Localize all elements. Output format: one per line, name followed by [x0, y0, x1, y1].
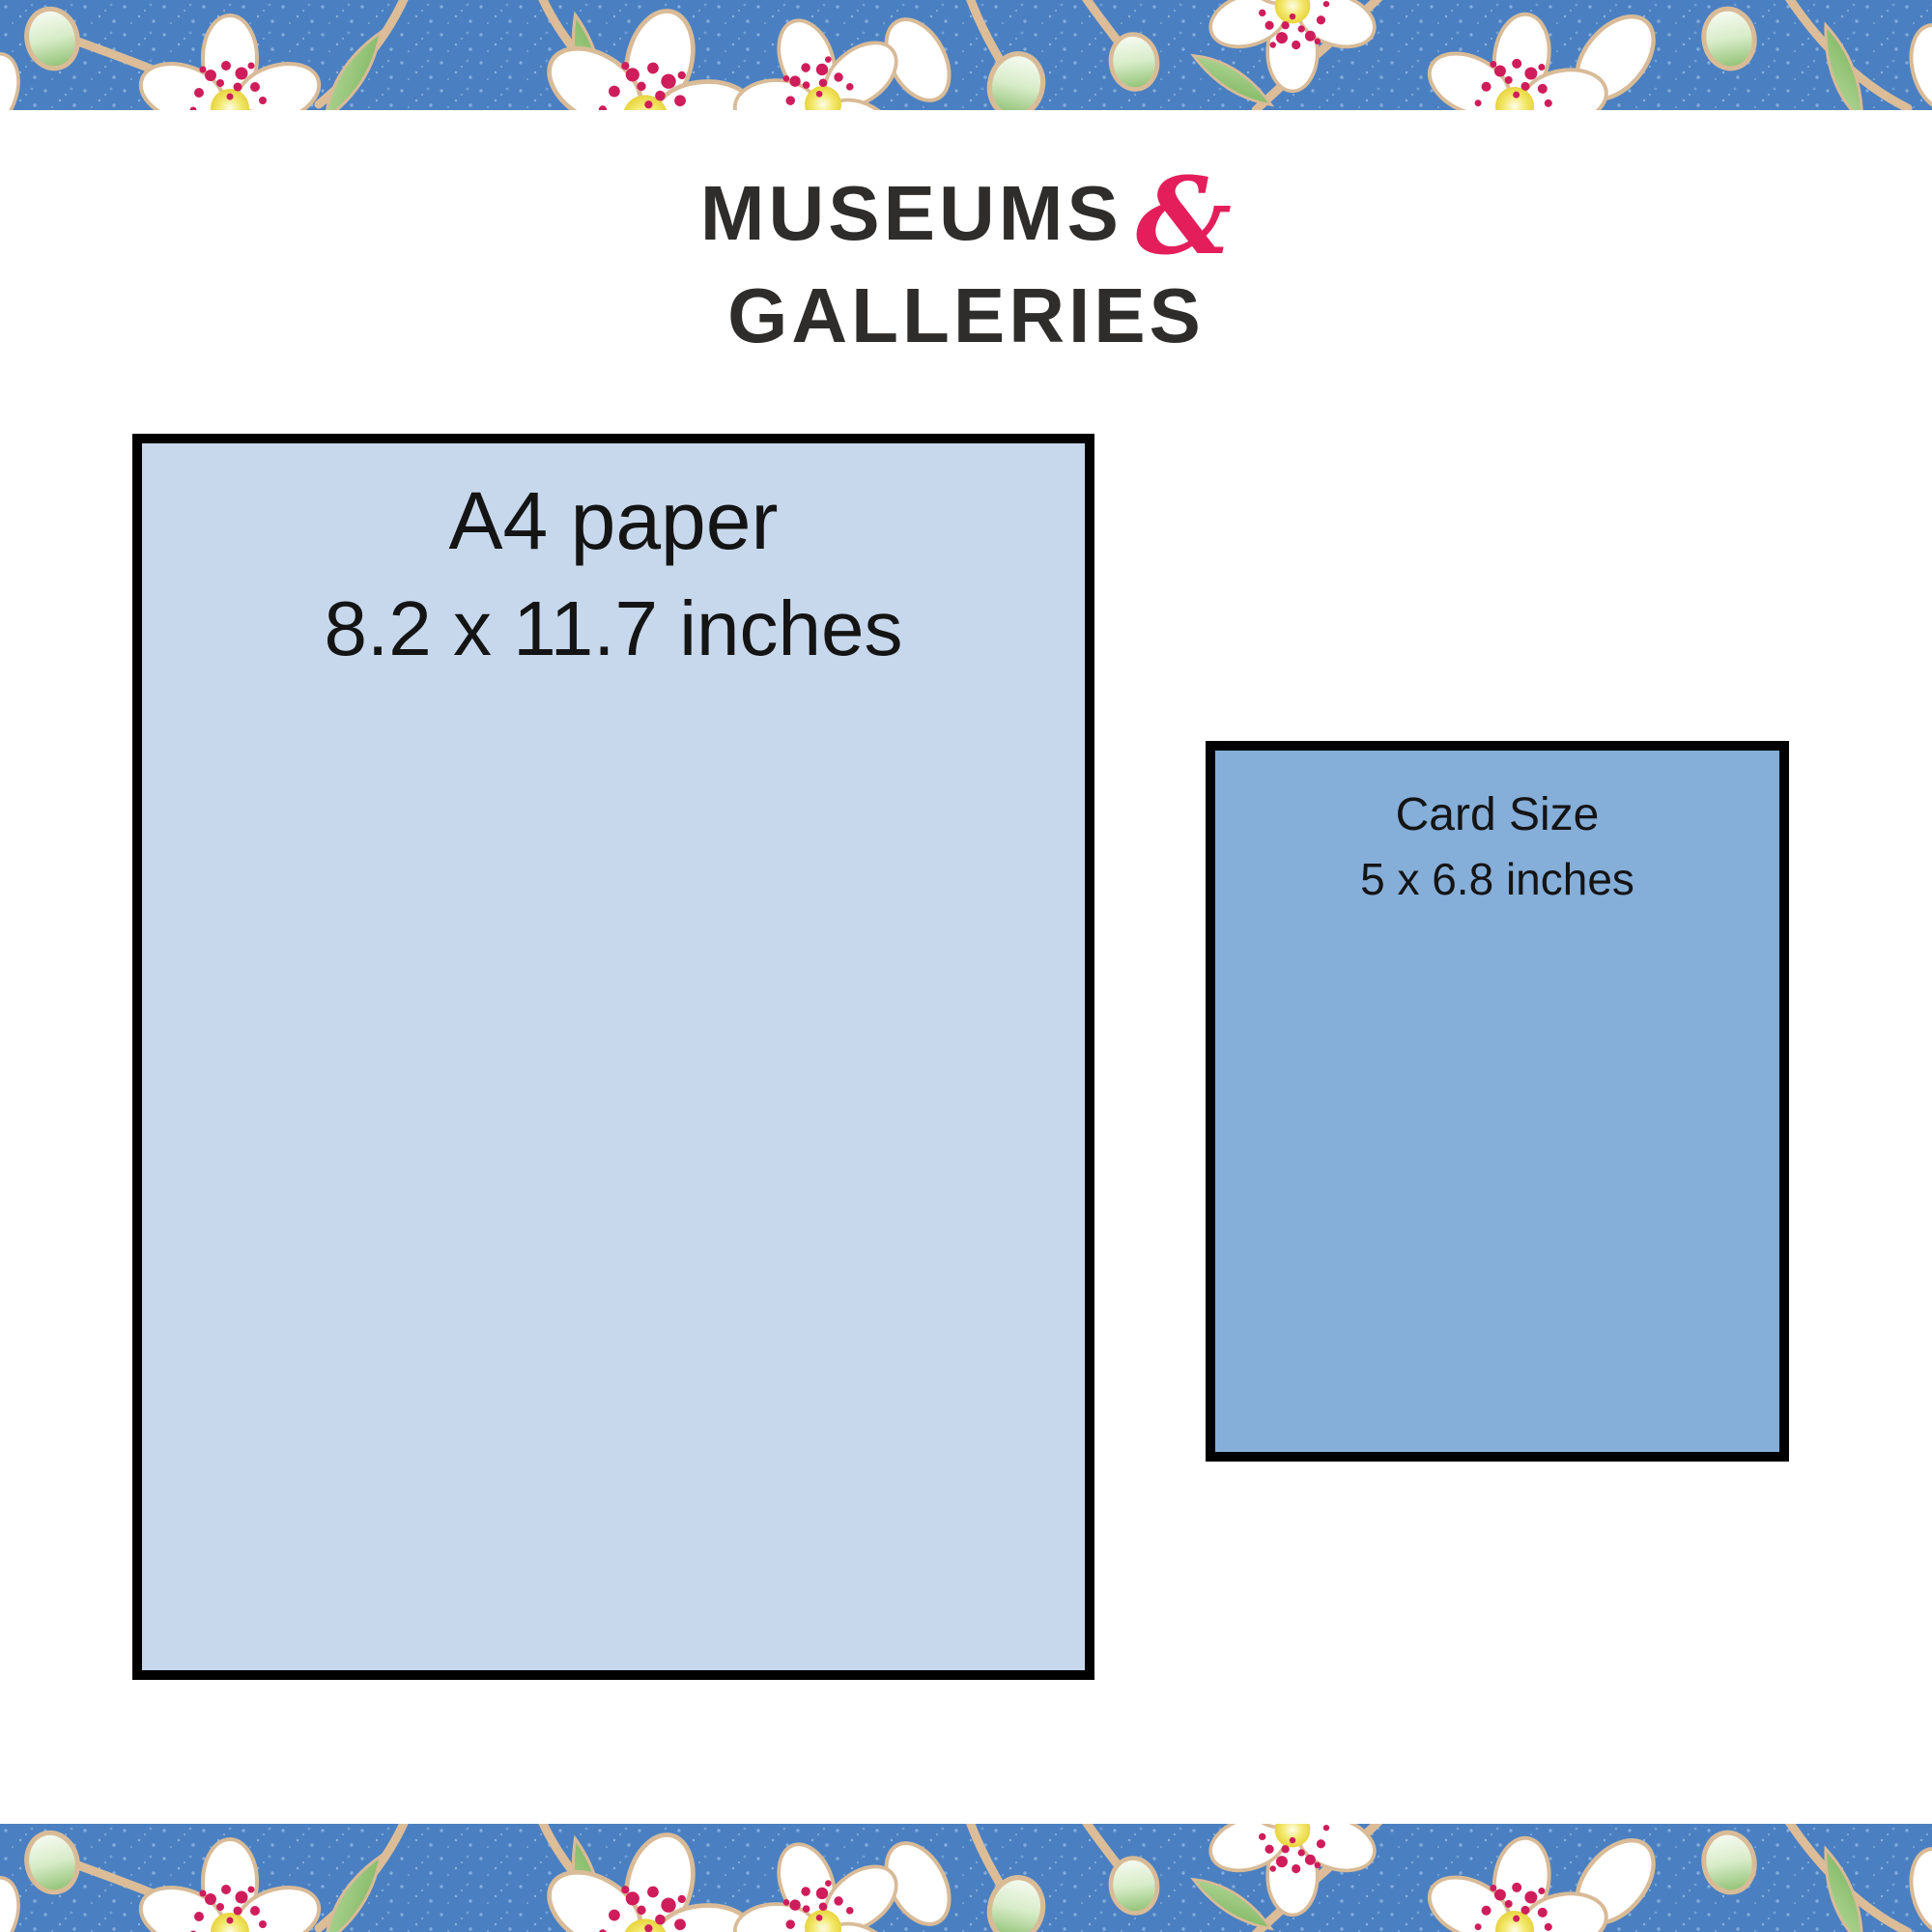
- brand-logo: MUSEUMS& GALLERIES: [0, 162, 1932, 367]
- brand-name-galleries: GALLERIES: [727, 272, 1205, 358]
- floral-border-bottom-image: [0, 1824, 1932, 1932]
- a4-panel-dimensions: 8.2 x 11.7 inches: [142, 575, 1085, 683]
- a4-panel-title: A4 paper: [142, 467, 1085, 575]
- cherry-blossom-pattern-icon: [0, 0, 1932, 110]
- a4-size-panel: A4 paper 8.2 x 11.7 inches: [132, 434, 1094, 1680]
- card-panel-dimensions: 5 x 6.8 inches: [1215, 847, 1779, 911]
- cherry-blossom-pattern-icon: [0, 1824, 1932, 1932]
- card-panel-title: Card Size: [1215, 783, 1779, 847]
- brand-logo-line2: GALLERIES: [0, 265, 1932, 367]
- floral-border-top-image: [0, 0, 1932, 110]
- brand-logo-line1: MUSEUMS&: [0, 162, 1932, 265]
- brand-name-museums: MUSEUMS: [700, 170, 1122, 256]
- card-size-panel: Card Size 5 x 6.8 inches: [1206, 741, 1789, 1462]
- product-size-guide-image: MUSEUMS& GALLERIES A4 paper 8.2 x 11.7 i…: [0, 0, 1932, 1932]
